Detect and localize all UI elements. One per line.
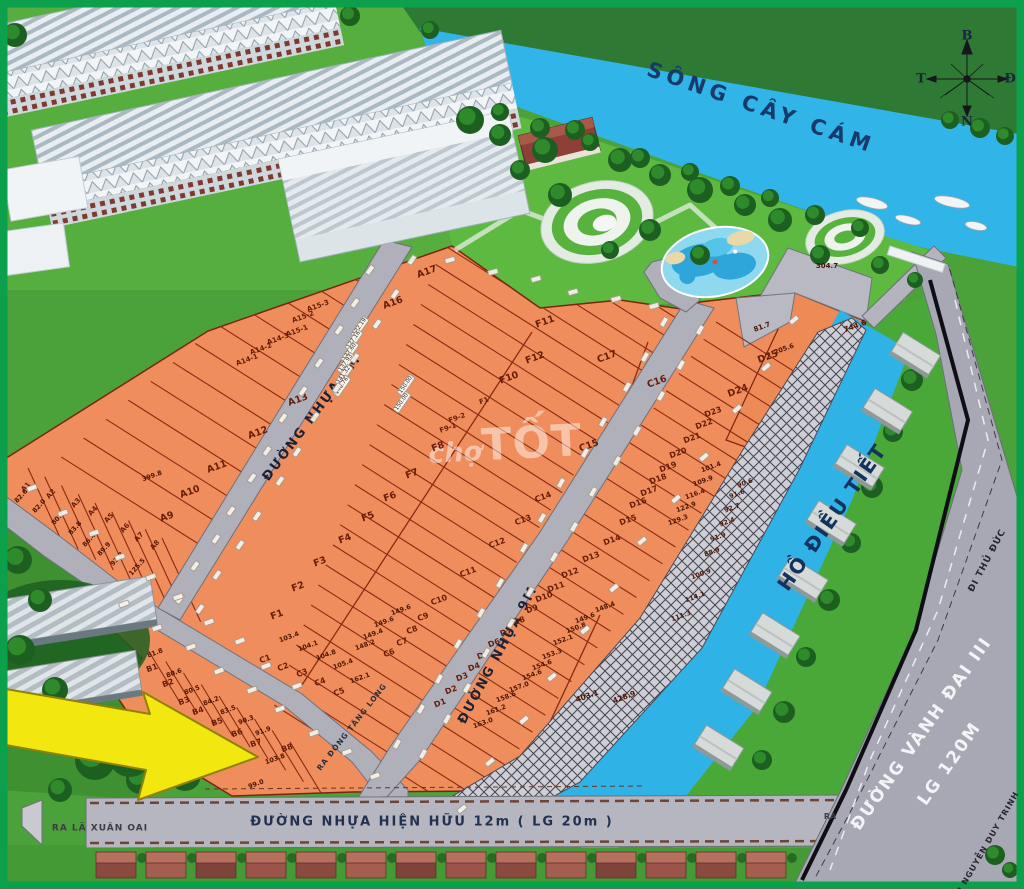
exit-right-label: RA (824, 813, 836, 821)
site-plan-map: SÔNG CÂY CÁM HỒ ĐIỀU TIẾT ĐƯỜNG NHỰA 9M … (0, 0, 1024, 889)
existing-road-label: ĐƯỜNG NHỰA HIỆN HỮU 12m ( LG 20m ) (250, 816, 613, 829)
plot-area-value: 304.7 (816, 262, 838, 270)
exit-left-label: RA LÃ XUÂN OAI (52, 825, 148, 834)
compass-south: N (961, 116, 973, 129)
compass-east: Đ (1004, 73, 1015, 86)
compass-west: T (916, 73, 926, 86)
watermark-big: TỐT (480, 415, 583, 471)
villa (0, 223, 70, 275)
compass-north: B (962, 30, 973, 43)
